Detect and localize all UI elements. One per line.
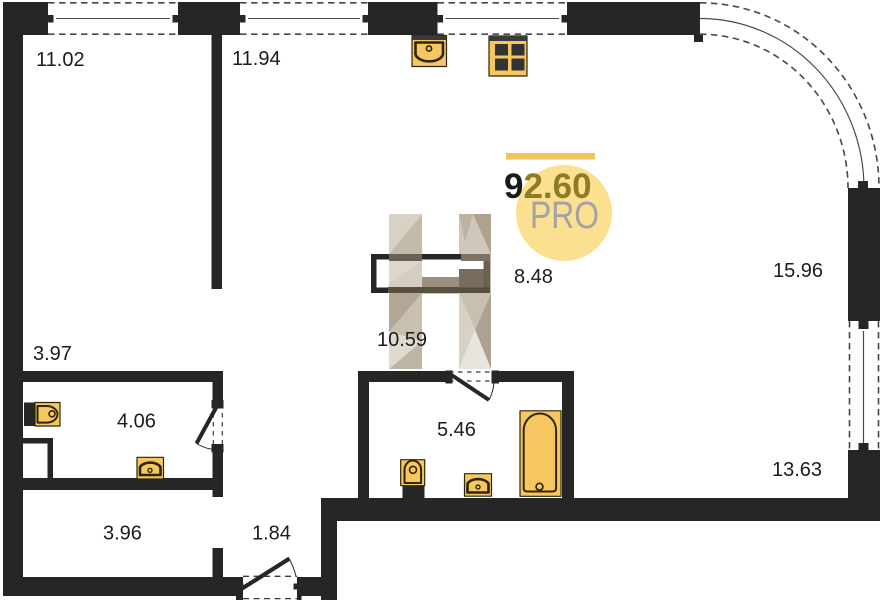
svg-text:11.94: 11.94 [232,48,281,70]
svg-text:5.46: 5.46 [437,419,476,441]
svg-text:3.97: 3.97 [33,343,72,365]
svg-text:13.63: 13.63 [772,459,822,481]
svg-text:8.48: 8.48 [514,266,553,288]
svg-text:PRO: PRO [530,195,599,237]
svg-text:11.02: 11.02 [36,49,85,71]
svg-text:15.96: 15.96 [773,260,823,282]
svg-text:1.84: 1.84 [252,523,291,545]
svg-text:4.06: 4.06 [117,411,156,433]
svg-text:10.59: 10.59 [377,329,427,351]
svg-text:3.96: 3.96 [103,523,142,545]
